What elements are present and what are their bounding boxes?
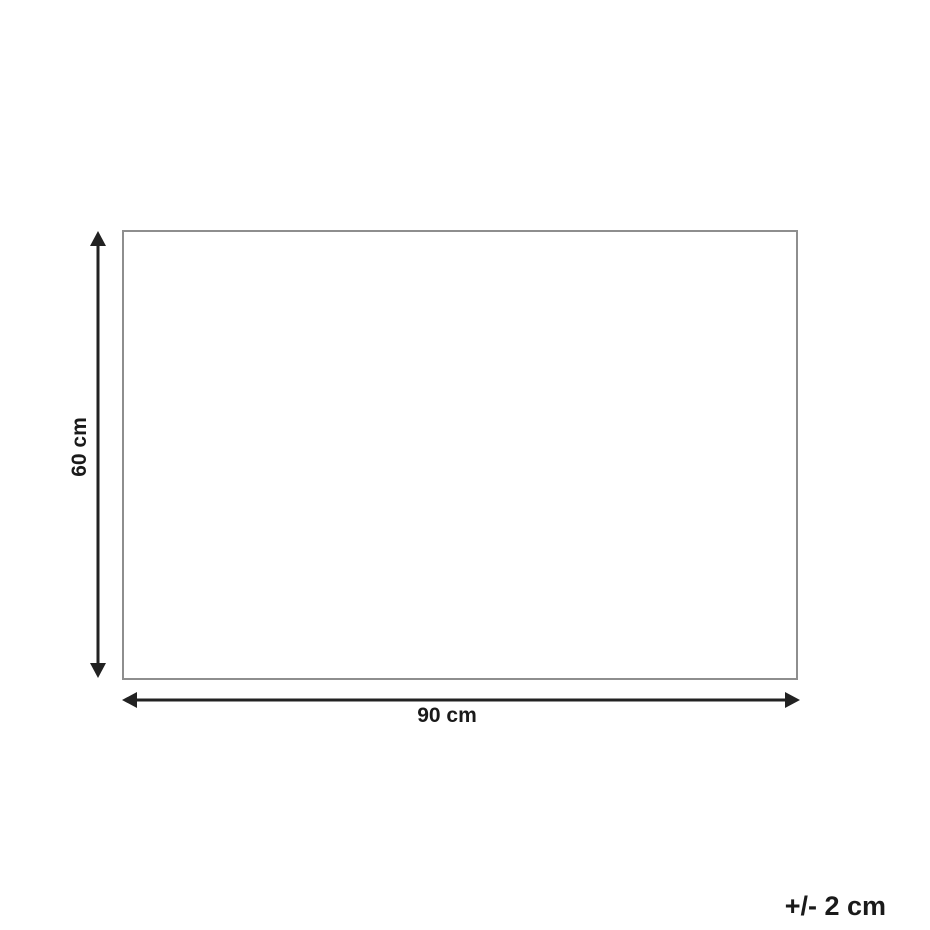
arrowhead-right-icon bbox=[785, 692, 800, 708]
height-arrow-line bbox=[97, 241, 100, 668]
dimension-diagram: 60 cm 90 cm +/- 2 cm bbox=[0, 0, 930, 930]
tolerance-label: +/- 2 cm bbox=[785, 891, 886, 922]
arrowhead-down-icon bbox=[90, 663, 106, 678]
height-label: 60 cm bbox=[67, 397, 93, 497]
product-outline-rectangle bbox=[122, 230, 798, 680]
width-arrow-line bbox=[132, 699, 790, 702]
width-label: 90 cm bbox=[122, 704, 772, 728]
